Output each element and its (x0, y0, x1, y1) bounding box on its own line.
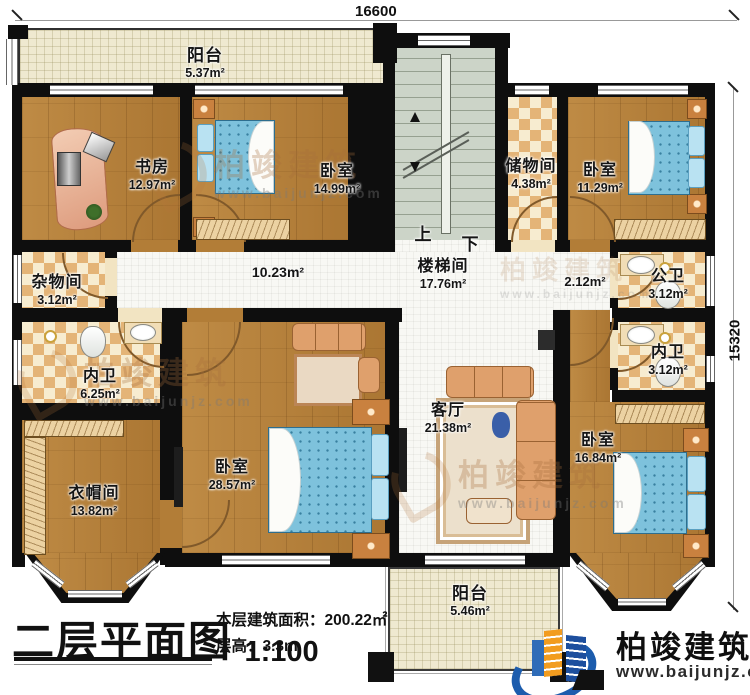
room-name: 卧室 (182, 459, 282, 478)
sink-icon (130, 324, 156, 341)
pillow (688, 126, 705, 156)
logo-website: www.baijunjz.com (616, 662, 750, 682)
room-area: 3.12m² (628, 287, 708, 302)
pillow (371, 434, 389, 476)
coffee-table (466, 498, 512, 524)
sofa (292, 323, 366, 351)
title-underline-thin (14, 664, 212, 665)
nightstand (352, 533, 390, 559)
window (222, 555, 330, 565)
sink-icon (627, 326, 655, 344)
dimension-top-value: 16600 (352, 3, 400, 20)
closet (24, 420, 124, 437)
room-name: 书房 (102, 159, 202, 178)
light-icon (44, 330, 57, 343)
toilet-icon (80, 326, 106, 358)
room-label-bath-inner-west: 内卫 6.25m² (60, 368, 140, 402)
room-name: 阳台 (410, 584, 530, 604)
bed-sheet (248, 121, 274, 193)
room-label-bedroom-nw: 卧室 14.99m² (287, 163, 387, 197)
logo-building-orange (544, 629, 562, 677)
wall-segment (612, 308, 715, 322)
hallway-east-area-label: 2.12m² (545, 274, 625, 289)
logo-building-small (532, 640, 544, 676)
room-label-living: 客厅 21.38m² (398, 402, 498, 436)
wardrobe (196, 219, 290, 240)
stairs-down-arrow-icon (410, 162, 420, 172)
room-area: 2.12m² (545, 274, 625, 289)
light-icon (659, 332, 671, 344)
wall-segment (612, 390, 715, 402)
window (515, 85, 549, 95)
title-underline (14, 657, 212, 661)
wall-segment (12, 553, 25, 567)
room-label-utility: 杂物间 3.12m² (17, 274, 97, 308)
stairs-down-label: 下 (455, 235, 485, 255)
company-logo: 柏竣建筑 www.baijunjz.com (502, 616, 748, 692)
room-area: 11.29m² (550, 181, 650, 196)
sofa (446, 366, 534, 398)
room-name: 杂物间 (17, 274, 97, 293)
pillow (197, 124, 214, 152)
door-gap (187, 308, 243, 322)
side-table (538, 330, 555, 350)
room-area: 21.38m² (398, 421, 498, 436)
room-area: 10.23m² (228, 264, 328, 281)
logo-company-name: 柏竣建筑 (616, 622, 750, 667)
room-label-balcony-top: 阳台 5.37m² (145, 46, 265, 81)
room-area: 17.76m² (393, 277, 493, 292)
plant-icon (86, 204, 102, 220)
floor-area-note: 本层建筑面积：200.22㎡ (216, 608, 387, 630)
room-name: 卧室 (287, 163, 387, 182)
room-area: 3.12m² (17, 293, 97, 308)
nightstand (193, 99, 215, 119)
nightstand (683, 428, 709, 452)
room-name: 衣帽间 (44, 485, 144, 504)
dimension-tick (728, 9, 739, 20)
room-name: 公卫 (628, 268, 708, 287)
window (195, 85, 343, 95)
room-label-bedroom-ne: 卧室 11.29m² (550, 162, 650, 196)
dimension-right-value: 15320 (727, 308, 744, 374)
wall-segment (705, 83, 715, 567)
room-label-bedroom-master: 卧室 28.57m² (182, 459, 282, 493)
room-name: 卧室 (550, 162, 650, 181)
logo-icon (508, 620, 604, 688)
door-gap (118, 308, 162, 322)
stairs-up-arrow-icon (410, 112, 420, 122)
room-label-bedroom-se: 卧室 16.84m² (548, 432, 648, 466)
hallway-area-label: 10.23m² (228, 264, 328, 281)
room-area: 12.97m² (102, 178, 202, 193)
window (618, 598, 666, 606)
window (418, 35, 470, 46)
pillow (687, 494, 706, 530)
window (50, 85, 153, 95)
pillow (371, 478, 389, 520)
room-name: 内卫 (60, 368, 140, 387)
room-area: 14.99m² (287, 182, 387, 197)
window (68, 590, 122, 598)
room-label-bath-public: 公卫 3.12m² (628, 268, 708, 302)
room-area: 6.25m² (60, 387, 140, 402)
room-name: 内卫 (628, 344, 708, 363)
door-gap (610, 330, 618, 368)
closet (24, 437, 46, 555)
wardrobe (614, 219, 706, 240)
room-area: 3.12m² (628, 363, 708, 378)
room-area: 28.57m² (182, 478, 282, 493)
dimension-tick (11, 9, 22, 20)
room-name: 阳台 (145, 46, 265, 66)
room-label-staircase: 楼梯间 17.76m² (393, 258, 493, 292)
room-area: 13.82m² (44, 504, 144, 519)
room-label-study: 书房 12.97m² (102, 159, 202, 193)
room-name: 卧室 (548, 432, 648, 451)
room-label-cloakroom: 衣帽间 13.82m² (44, 485, 144, 519)
window (425, 555, 525, 565)
floor-height-note: 层高：3.3m (216, 634, 298, 656)
room-area: 16.84m² (548, 451, 648, 466)
pillow (688, 158, 705, 188)
monitor-icon (57, 152, 81, 186)
room-name: 楼梯间 (393, 258, 493, 277)
wardrobe (615, 404, 705, 424)
room-label-bath-inner-east: 内卫 3.12m² (628, 344, 708, 378)
nightstand (352, 399, 390, 425)
window (598, 85, 688, 95)
room-name: 客厅 (398, 402, 498, 421)
floor-plan: 16600 15320 (0, 0, 750, 695)
nightstand (687, 194, 707, 214)
room-area: 5.37m² (145, 66, 265, 81)
tv-icon (399, 428, 407, 492)
window (6, 39, 18, 85)
door-gap (160, 500, 182, 548)
window (13, 340, 22, 385)
nightstand (687, 99, 707, 119)
wall-segment (8, 25, 28, 39)
wall-segment (12, 403, 182, 420)
nightstand (683, 534, 709, 558)
stairs-up-label: 上 (408, 225, 438, 245)
pillow (687, 456, 706, 492)
dimension-line-top (15, 20, 737, 21)
wall-segment (495, 33, 508, 252)
side-table (358, 357, 380, 393)
wall-segment (12, 83, 22, 567)
